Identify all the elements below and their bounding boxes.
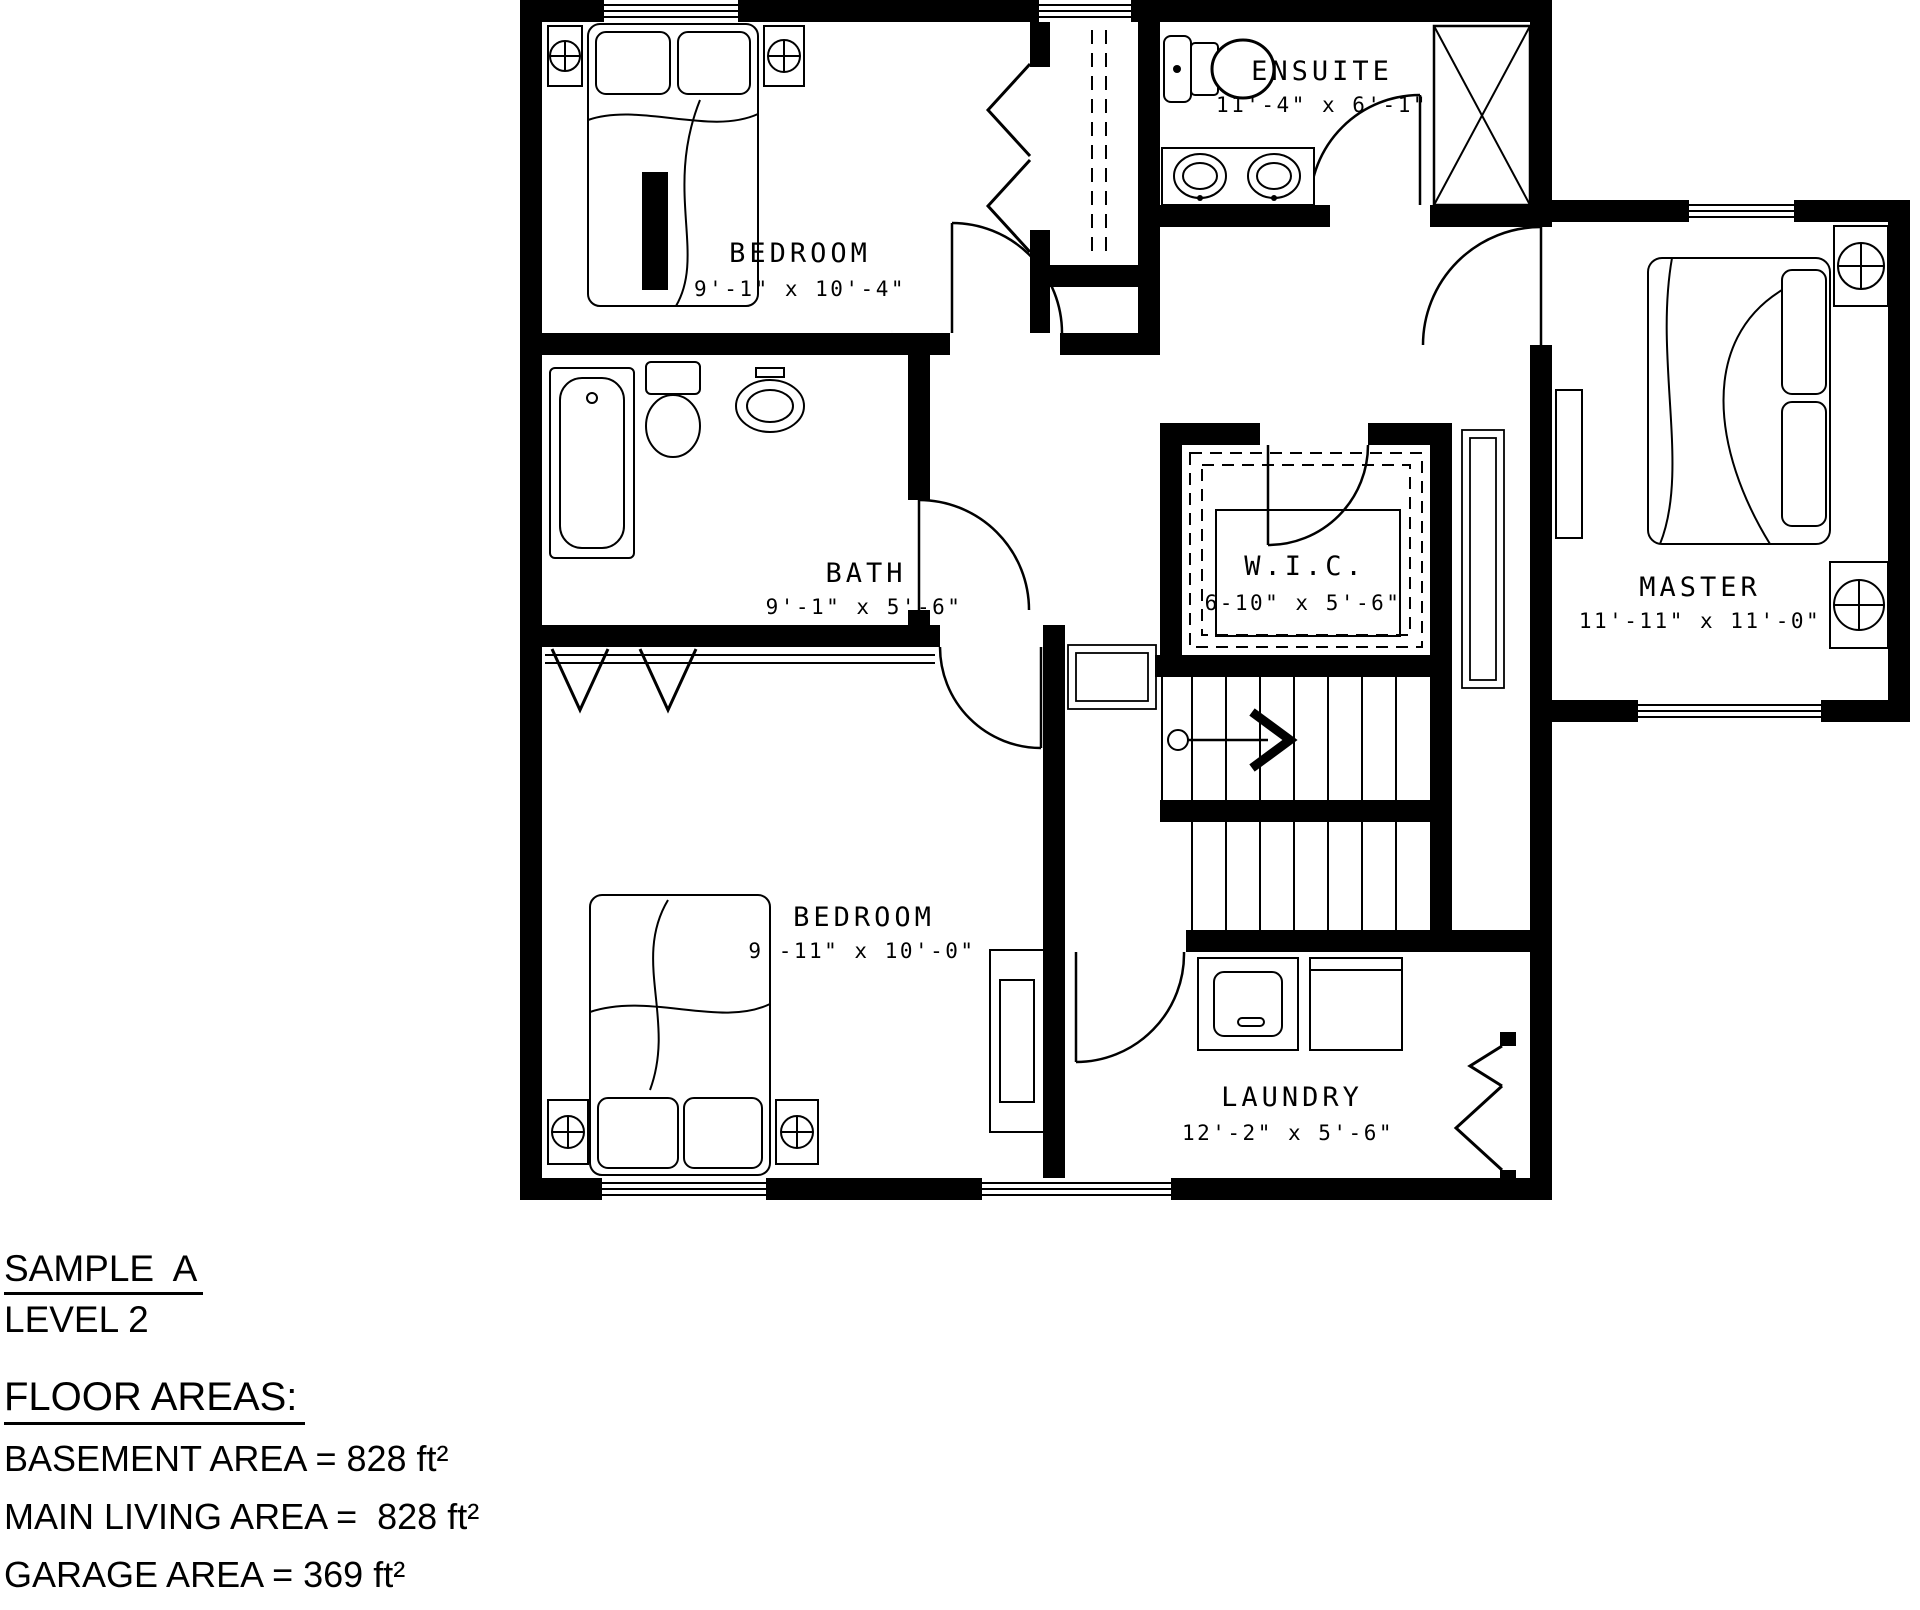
dresser-master <box>1556 390 1582 538</box>
dresser-bedroom2 <box>990 950 1044 1132</box>
window-master-top <box>1681 200 1802 222</box>
basement-area-line: BASEMENT AREA = 828 ft² <box>4 1436 479 1483</box>
toilet-bath <box>646 362 700 457</box>
stairs-direction-arrow-icon <box>1168 712 1290 768</box>
floorplan-page: BEDROOM 9'-1" x 10'-4" ENSUITE 11'-4" x … <box>0 0 1920 1610</box>
room-label-ensuite: ENSUITE <box>1251 56 1393 87</box>
door-bath <box>919 500 1029 610</box>
window-laundry-bottom <box>974 1178 1179 1200</box>
room-label-wic: W.I.C. <box>1244 551 1366 582</box>
door-laundry <box>1076 952 1184 1062</box>
level-label: LEVEL 2 <box>4 1299 479 1341</box>
window-master-bottom <box>1630 700 1829 722</box>
bifold-doors-bedroom2-closet <box>552 649 696 710</box>
room-dims-wic: 6-10" x 5'-6" <box>1205 591 1402 615</box>
project-title: SAMPLE A <box>4 1248 203 1295</box>
washer <box>1198 958 1298 1050</box>
nightstand-bedroom1-right <box>764 26 804 86</box>
garage-area-line: GARAGE AREA = 369 ft² <box>4 1552 479 1599</box>
room-dims-laundry: 12'-2" x 5'-6" <box>1182 1121 1394 1145</box>
main-living-area-line: MAIN LIVING AREA = 828 ft² <box>4 1494 479 1541</box>
floor-areas-heading: FLOOR AREAS: <box>4 1375 305 1425</box>
wic-shelving <box>1190 453 1422 647</box>
bifold-doors-laundry-closet <box>1456 1032 1516 1184</box>
room-dims-bedroom2: 9'-11" x 10'-0" <box>748 939 975 963</box>
room-label-master: MASTER <box>1639 572 1761 603</box>
sink-bath <box>736 368 804 432</box>
title-block: SAMPLE A LEVEL 2 FLOOR AREAS: BASEMENT A… <box>4 1248 479 1610</box>
nightstand-bedroom1-left <box>548 26 582 86</box>
vanity-ensuite <box>1162 148 1314 205</box>
nightstand-bedroom2-right <box>776 1100 818 1164</box>
dryer <box>1310 958 1402 1050</box>
room-dims-ensuite: 11'-4" x 6'-1" <box>1216 93 1428 117</box>
room-label-bedroom2: BEDROOM <box>793 902 935 933</box>
bathtub <box>550 368 634 558</box>
door-wic <box>1268 445 1368 545</box>
room-label-bedroom1: BEDROOM <box>729 238 871 269</box>
nightstand-bedroom2-left <box>548 1100 588 1164</box>
room-label-laundry: LAUNDRY <box>1221 1082 1363 1113</box>
window-bedroom1 <box>596 0 746 22</box>
window-hall-top <box>1031 0 1139 22</box>
bifold-doors-bedroom1-closet <box>988 64 1030 252</box>
room-dims-bath: 9'-1" x 5'-6" <box>766 595 963 619</box>
nightstand-master-bottom <box>1830 562 1888 648</box>
room-label-bath: BATH <box>825 558 906 589</box>
room-dims-master: 11'-11" x 11'-0" <box>1579 609 1821 633</box>
nightstand-master-top <box>1834 226 1888 306</box>
linen-shelf-hall <box>1068 645 1156 709</box>
bed-master <box>1648 258 1830 544</box>
window-bedroom2-bottom <box>594 1178 774 1200</box>
door-master <box>1423 227 1541 345</box>
bed-bedroom2 <box>590 895 770 1175</box>
door-bedroom2 <box>940 647 1041 748</box>
railing-open-to-below <box>1462 430 1504 688</box>
shower-stall <box>1434 26 1530 205</box>
room-dims-bedroom1: 9'-1" x 10'-4" <box>694 277 906 301</box>
closet-rod-bedroom1 <box>1092 30 1106 260</box>
